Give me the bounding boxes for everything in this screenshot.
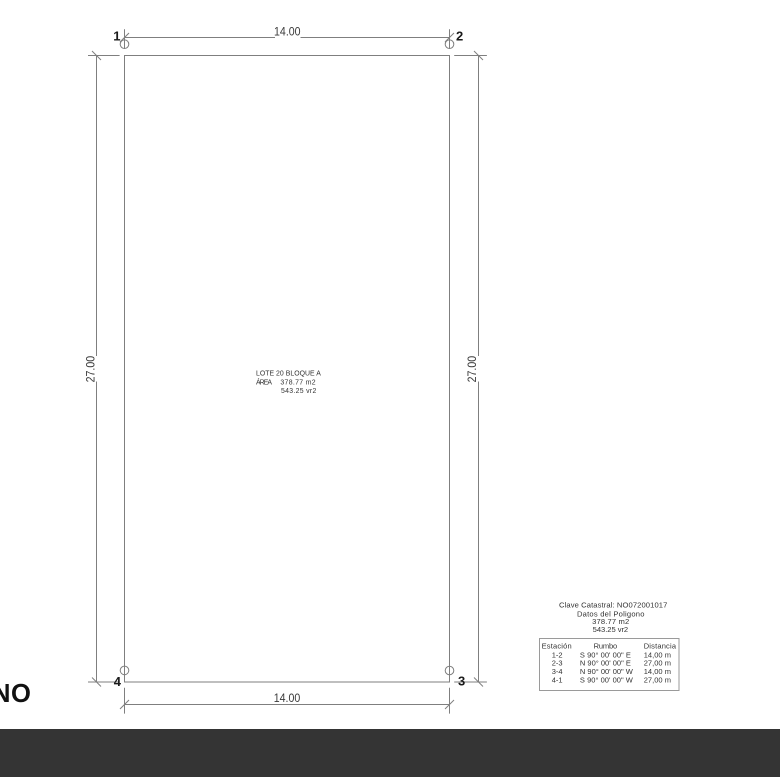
- svg-text:ÁREA: ÁREA: [256, 377, 272, 386]
- svg-text:2: 2: [456, 29, 463, 44]
- svg-text:4-1: 4-1: [552, 675, 563, 684]
- svg-text:4: 4: [114, 674, 122, 689]
- svg-text:27.00: 27.00: [465, 356, 479, 383]
- svg-text:3: 3: [458, 674, 465, 689]
- svg-text:Clave Catastral: NO072001017: Clave Catastral: NO072001017: [559, 600, 667, 609]
- svg-text:27.00: 27.00: [84, 356, 98, 383]
- svg-text:1: 1: [113, 29, 120, 44]
- svg-text:378.77 m2: 378.77 m2: [280, 379, 315, 386]
- svg-text:2-3: 2-3: [552, 659, 563, 668]
- svg-text:27,00 m: 27,00 m: [644, 675, 671, 684]
- svg-text:S 90° 00' 00" W: S 90° 00' 00" W: [580, 675, 634, 684]
- svg-text:543.25 vr2: 543.25 vr2: [593, 625, 629, 634]
- svg-text:N 90° 00' 00" E: N 90° 00' 00" E: [580, 659, 631, 668]
- svg-text:14.00: 14.00: [274, 691, 301, 705]
- svg-text:LOTE 20 BLOQUE A: LOTE 20 BLOQUE A: [256, 371, 321, 378]
- svg-text:543.25 vr2: 543.25 vr2: [281, 388, 316, 395]
- svg-text:27,00 m: 27,00 m: [644, 659, 671, 668]
- svg-text:14.00: 14.00: [274, 25, 301, 39]
